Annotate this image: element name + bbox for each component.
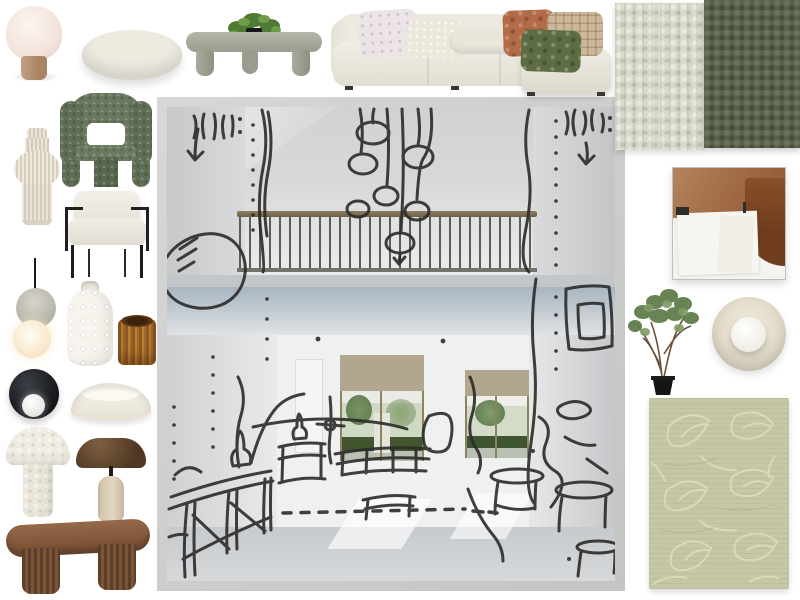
sage-rug[interactable] bbox=[649, 398, 789, 589]
chair-pedestal bbox=[94, 157, 118, 187]
chair-armrest-right bbox=[131, 207, 149, 210]
sofa-foot bbox=[597, 92, 605, 96]
dotted-vase[interactable] bbox=[67, 281, 113, 366]
art-white-sheet-2 bbox=[718, 215, 755, 273]
sconce-globe bbox=[731, 317, 766, 352]
table-leg bbox=[292, 50, 310, 76]
table-lamp[interactable] bbox=[3, 6, 65, 82]
chair-frame-right bbox=[146, 207, 149, 251]
round-sconce[interactable] bbox=[712, 297, 786, 371]
vase-body bbox=[67, 289, 113, 366]
art-black-tick bbox=[743, 202, 746, 213]
organic-bowl[interactable] bbox=[71, 379, 151, 421]
table-top bbox=[186, 32, 322, 52]
art-black-dash bbox=[676, 207, 689, 215]
bench-leg-right bbox=[98, 544, 136, 590]
rug-leaf-pattern bbox=[649, 398, 789, 589]
sofa[interactable] bbox=[331, 4, 612, 96]
fabric-swatch-olive[interactable] bbox=[704, 0, 800, 148]
bronze-mushroom-lamp[interactable] bbox=[76, 434, 146, 522]
bench-leg-left bbox=[22, 548, 60, 594]
chair-leg bbox=[71, 245, 74, 278]
chair-opening bbox=[87, 123, 125, 146]
sofa-foot bbox=[451, 86, 459, 90]
disc-globe bbox=[22, 394, 45, 417]
moodboard-canvas bbox=[0, 0, 800, 600]
pendant-cord bbox=[34, 258, 36, 292]
candle-rim bbox=[121, 315, 153, 327]
chair-leg bbox=[88, 249, 90, 277]
sofa-foot bbox=[345, 86, 353, 90]
sofa-foot bbox=[527, 92, 535, 96]
tree-icon bbox=[621, 282, 705, 396]
wood-bench[interactable] bbox=[6, 514, 150, 596]
abstract-artwork[interactable] bbox=[672, 167, 786, 280]
black-disc-light[interactable] bbox=[9, 369, 59, 419]
amber-candle-holder[interactable] bbox=[118, 315, 156, 365]
ribbed-vase[interactable] bbox=[14, 128, 60, 225]
lamp-base bbox=[21, 56, 47, 80]
ottoman[interactable] bbox=[82, 30, 182, 80]
white-armchair[interactable] bbox=[62, 191, 152, 278]
vase-body bbox=[22, 184, 52, 222]
pendant-light[interactable] bbox=[13, 258, 57, 362]
chair-leg bbox=[140, 245, 143, 278]
green-armchair[interactable] bbox=[60, 93, 152, 187]
fabric-swatch-light[interactable] bbox=[615, 3, 704, 150]
chair-leg-left bbox=[62, 161, 80, 187]
table-leg bbox=[242, 50, 258, 74]
pendant-sphere-glow bbox=[13, 320, 51, 358]
vase-bulb bbox=[14, 150, 60, 188]
vase-foot bbox=[23, 220, 51, 225]
coffee-table[interactable] bbox=[186, 10, 322, 76]
bowl-inner bbox=[81, 385, 141, 401]
lamp-shade bbox=[6, 6, 62, 60]
potted-tree[interactable] bbox=[621, 282, 705, 396]
chair-leg bbox=[124, 249, 126, 277]
chair-leg-right bbox=[132, 161, 150, 187]
render-image[interactable] bbox=[157, 97, 625, 591]
lamp-dome bbox=[6, 427, 70, 465]
cushion-green bbox=[520, 29, 581, 73]
chair-seat-cushion bbox=[68, 219, 146, 245]
lamp-stem bbox=[23, 463, 53, 517]
lamp-dome bbox=[76, 438, 146, 468]
white-mushroom-lamp[interactable] bbox=[6, 427, 70, 519]
render-photo bbox=[167, 107, 615, 581]
chair-armrest-left bbox=[65, 207, 83, 210]
table-leg bbox=[196, 50, 214, 76]
marker-sketch-overlay bbox=[167, 107, 615, 581]
